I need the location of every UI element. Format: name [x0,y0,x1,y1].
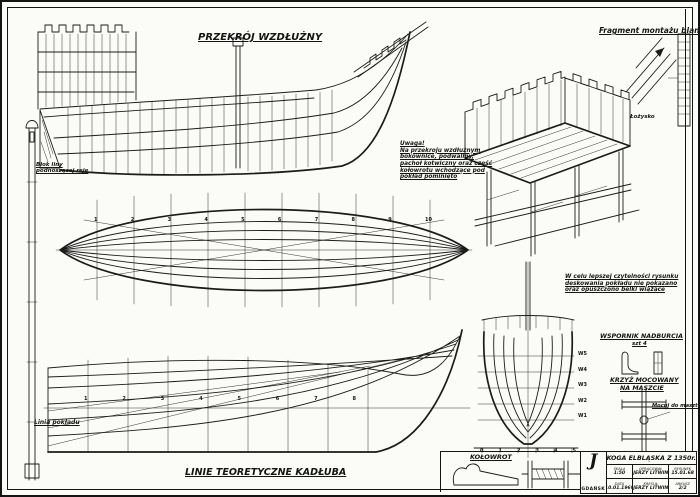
note-readability: W celu lepszej czytelności rysunkudeskow… [565,274,678,294]
list-item-text: W4 [578,367,587,373]
field-opracowal: OPRACOWAŁ JERZY LITWIN [633,465,669,479]
shipyard-logo: J [589,453,597,470]
field-rysunek: RYSUNEK 15.01.68 [669,465,696,479]
mast-drawing [18,112,46,492]
title-block-grid: SKALA 1:50 OPRACOWAŁ JERZY LITWIN RYSUNE… [607,465,696,493]
field-data: DATA 10.01.1969 [607,479,634,493]
label-bracket-title: WSPORNIK NADBURCIA [600,333,683,340]
list-item-text: W celu lepszej czytelności rysunku [565,274,678,281]
wall-mount-detail-drawing [618,28,698,140]
list-item-text: deskowania pokładu nie pokazano [565,281,678,288]
drawing-title: KOGA ELBLĄSKA Z 1350r. [607,452,696,465]
mast-cross-drawing [614,384,698,456]
body-plan-drawing [474,260,574,460]
half-breadth-plan-drawing [54,188,474,313]
field-skala: SKALA 1:50 [607,465,634,479]
title-block: J GDAŃSK KOGA ELBLĄSKA Z 1350r. SKALA 1:… [580,451,697,494]
title-block-main: KOGA ELBLĄSKA Z 1350r. SKALA 1:50 OPRACO… [607,452,696,493]
field-kreslil: KREŚLIŁ JERZY LITWIN [633,479,669,493]
list-item-text: W1 [578,413,587,419]
list-item-text: W5 [578,351,587,357]
title-block-city: GDAŃSK [581,487,605,492]
title-block-logo-cell: J GDAŃSK [581,452,607,493]
list-item-text: W3 [578,382,587,388]
sheer-plan-drawing [40,316,475,466]
list-item-text: oraz opuszczono belki wiążące [565,287,678,294]
field-arkusz: ARKUSZ 2/2 [669,479,696,493]
longitudinal-section-drawing [24,10,434,185]
waterline-labels: W5W4W3W2W1 [578,351,587,419]
bulwark-bracket-drawing [610,346,674,378]
drawing-sheet: PRZEKRÓJ WZDŁUŻNY Fragment montażu blank… [0,0,700,497]
list-item-text: W2 [578,398,587,404]
title-linie-teoretyczne: LINIE TEORETYCZNE KADŁUBA [185,468,346,479]
